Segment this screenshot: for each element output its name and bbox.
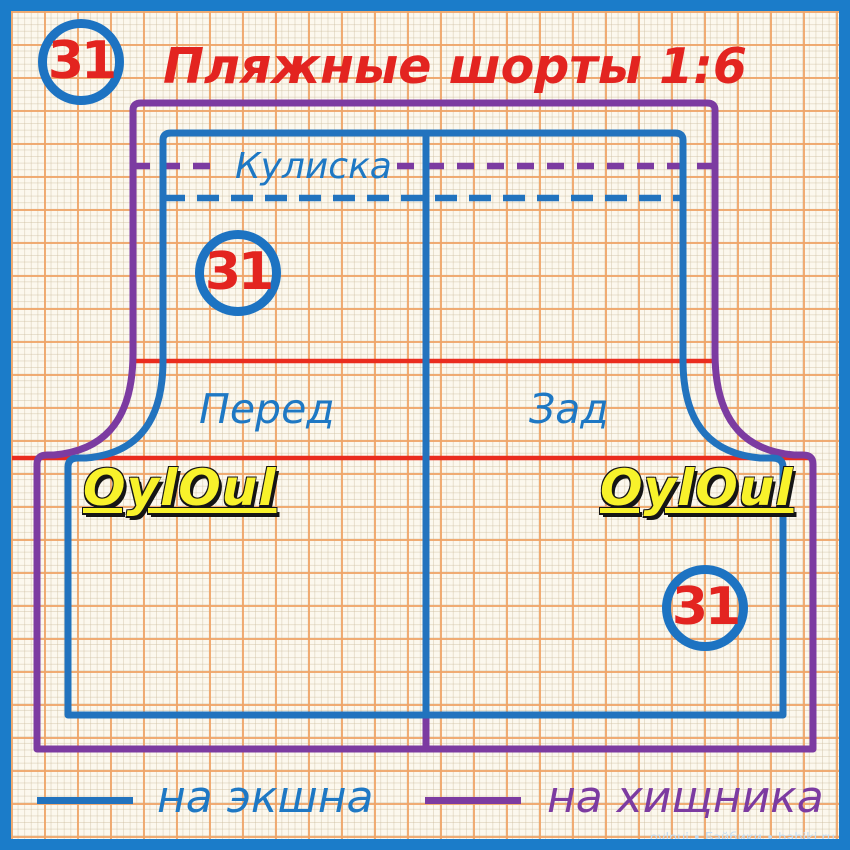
page-title: Пляжные шорты 1:6 (163, 38, 747, 95)
front-panel-label: Перед (199, 385, 335, 433)
badge-number: 31 (672, 581, 738, 633)
casing-label: Кулиска (235, 146, 392, 187)
legend-label-action: на экшна (157, 772, 373, 823)
pattern-drawing (0, 0, 850, 850)
site-credit: oyloui • Бэйбики • babiki.ru (650, 831, 843, 846)
legend-swatch-predator (425, 797, 521, 804)
legend-label-predator: на хищника (547, 772, 824, 823)
pattern-sheet: 31 31 31 Пляжные шорты 1:6 Кулиска Перед… (0, 0, 850, 850)
back-panel-label: Зад (529, 385, 609, 433)
badge-top-left: 31 (38, 19, 124, 105)
badge-back: 31 (662, 565, 748, 651)
badge-number: 31 (205, 246, 271, 298)
legend-swatch-action (37, 797, 133, 804)
watermark-script-right: OylOul (600, 459, 793, 517)
watermark-script-left: OylOul (83, 459, 276, 517)
badge-number: 31 (48, 35, 114, 87)
badge-front: 31 (195, 230, 281, 316)
